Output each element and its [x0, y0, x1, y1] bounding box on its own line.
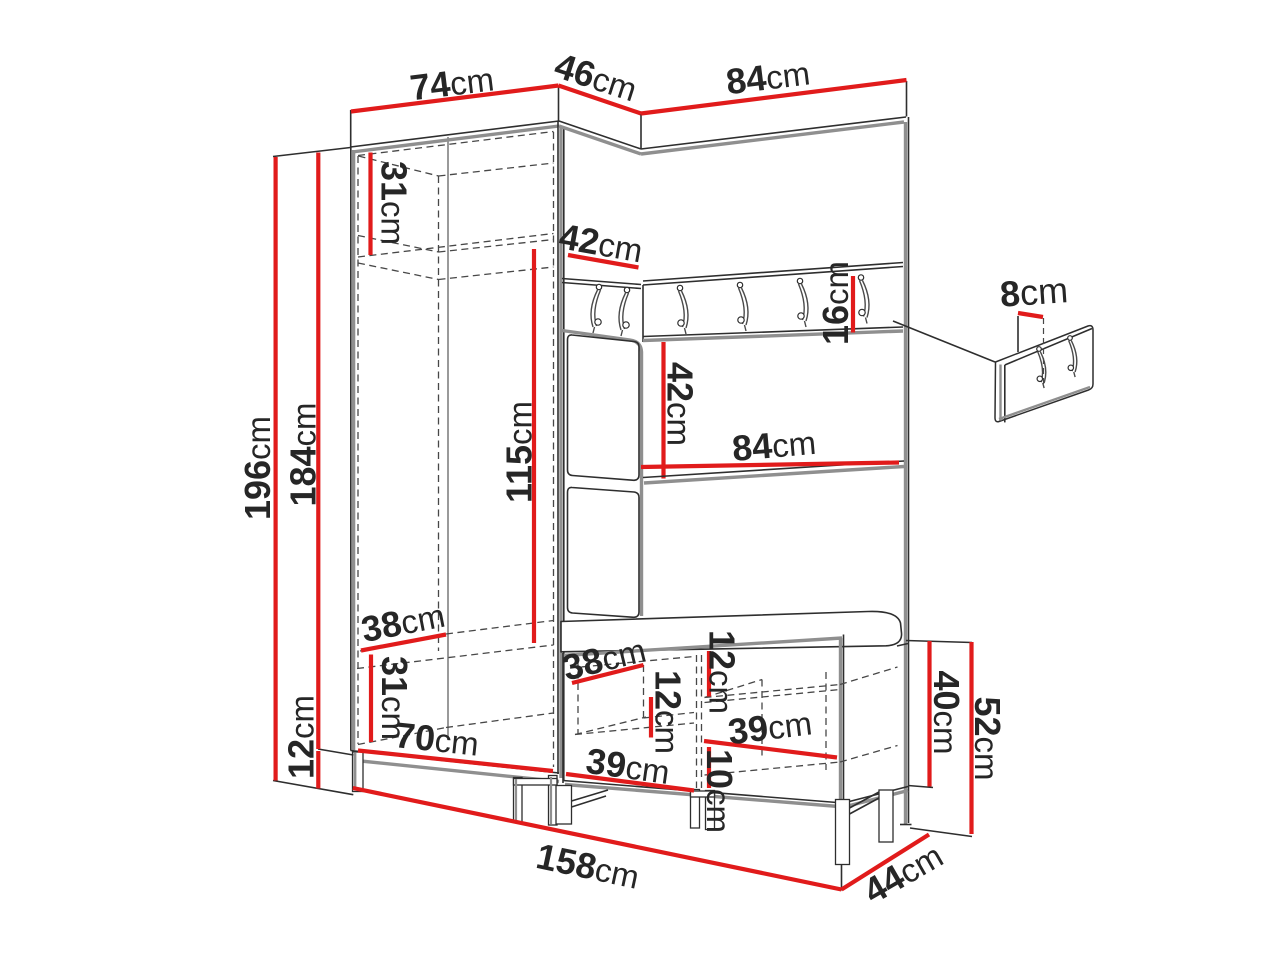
svg-text:42cm: 42cm [660, 362, 701, 446]
svg-text:12cm: 12cm [280, 695, 321, 779]
svg-text:196cm: 196cm [237, 416, 278, 520]
svg-text:52cm: 52cm [967, 696, 1008, 780]
svg-text:115cm: 115cm [498, 401, 539, 503]
svg-text:12cm: 12cm [702, 630, 743, 714]
svg-text:16cm: 16cm [815, 261, 856, 345]
svg-text:40cm: 40cm [926, 670, 967, 754]
svg-text:12cm: 12cm [648, 670, 689, 754]
svg-text:8cm: 8cm [999, 269, 1070, 315]
svg-text:84cm: 84cm [730, 421, 817, 469]
svg-text:184cm: 184cm [282, 402, 323, 506]
svg-text:31cm: 31cm [374, 161, 415, 245]
svg-text:10cm: 10cm [699, 749, 740, 833]
